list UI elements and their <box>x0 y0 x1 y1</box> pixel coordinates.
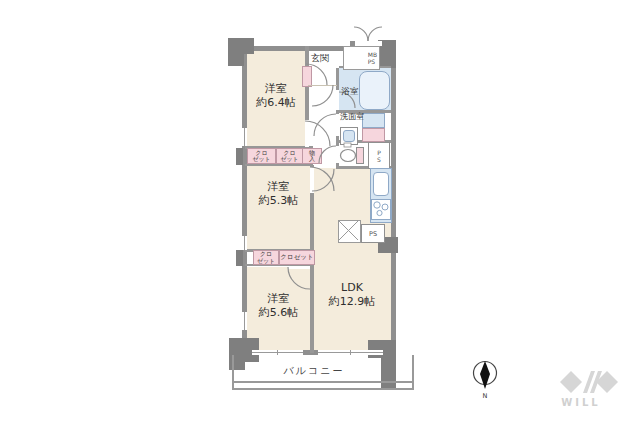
door-arcs <box>288 27 382 289</box>
ldk-name: LDK <box>314 281 390 295</box>
washroom-label: 洗面室 <box>336 111 368 122</box>
bathroom-text: 浴室 <box>342 86 359 96</box>
bedroom3-door-arc <box>288 267 310 289</box>
void-x-cross <box>339 221 358 240</box>
toilet-icon <box>341 148 364 164</box>
hall-door-arc-a <box>306 64 327 85</box>
ldk-size: 約12.9帖 <box>314 295 390 309</box>
bedroom2-door-arc <box>310 167 334 191</box>
bedroom3-name: 洋室 <box>247 292 310 306</box>
entrance-text: 玄関 <box>311 53 329 63</box>
hall-door-arc-b <box>312 85 333 106</box>
compass-north-label: N <box>483 392 488 400</box>
washroom-door-arc <box>314 114 336 136</box>
floorplan: MB PS P S PS クロ ゼット クロ ゼット 物 入 クロ ゼット クロ… <box>0 0 640 427</box>
stove-burners <box>374 202 388 216</box>
bedroom2-size: 約5.3帖 <box>247 194 310 208</box>
ldk-door-arc <box>312 169 334 191</box>
entrance-door-arc-left <box>354 27 368 41</box>
bathroom-label: 浴室 <box>337 86 363 98</box>
bedroom2-label: 洋室 約5.3帖 <box>247 180 310 208</box>
washroom-text: 洗面室 <box>340 112 364 121</box>
balcony-label: バルコニー <box>252 364 376 378</box>
bedroom1-label: 洋室 約6.4帖 <box>247 82 305 110</box>
bedroom3-size: 約5.6帖 <box>247 306 310 320</box>
bedroom2-name: 洋室 <box>247 180 310 194</box>
entrance-door-arc-right <box>368 27 382 41</box>
bedroom1-size: 約6.4帖 <box>247 96 305 110</box>
bedroom3-label: 洋室 約5.6帖 <box>247 292 310 320</box>
compass-icon: N <box>474 361 497 400</box>
will-logo-text: WILL <box>561 397 601 408</box>
balcony-text: バルコニー <box>284 365 345 376</box>
washbasin-faucet <box>344 143 351 147</box>
will-logo: WILL <box>560 371 618 408</box>
toilet-door-arc <box>319 146 336 163</box>
ldk-label: LDK 約12.9帖 <box>314 281 390 309</box>
entrance-label: 玄関 <box>300 52 340 65</box>
bedroom1-name: 洋室 <box>247 82 305 96</box>
